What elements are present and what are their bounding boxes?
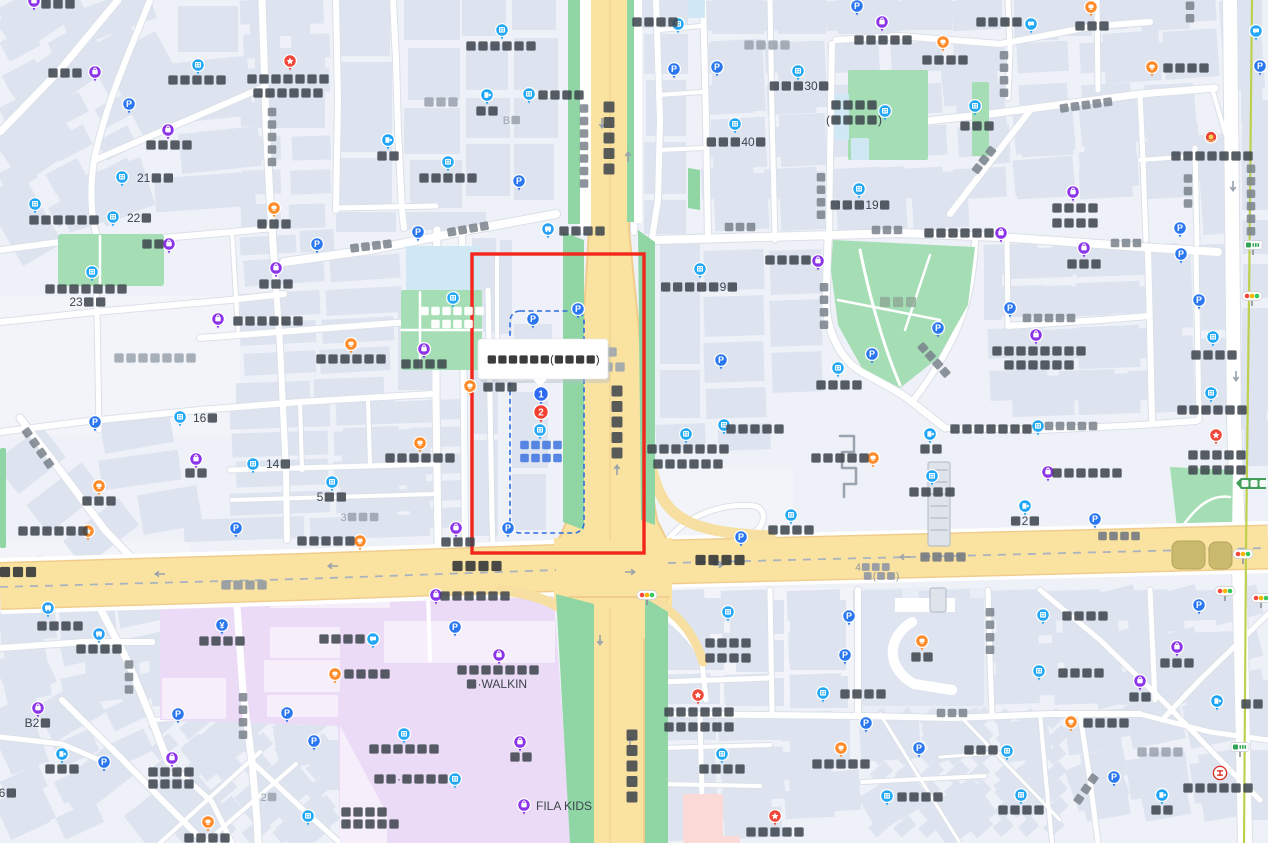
svg-text:4: 4 (855, 563, 861, 574)
svg-text:22: 22 (127, 211, 141, 225)
svg-text:40: 40 (741, 135, 755, 149)
svg-text:6: 6 (0, 786, 6, 800)
svg-text:FILA KIDS: FILA KIDS (536, 799, 592, 813)
svg-text:): ) (596, 354, 600, 366)
svg-text:2: 2 (260, 792, 266, 804)
svg-text:3: 3 (340, 512, 346, 524)
svg-text:): ) (896, 572, 899, 583)
svg-text:19: 19 (865, 198, 879, 212)
svg-text:·: · (397, 772, 401, 786)
svg-text:·WALKIN: ·WALKIN (478, 677, 528, 691)
svg-text:23: 23 (69, 295, 83, 309)
svg-text:B: B (503, 115, 510, 127)
svg-text:16: 16 (193, 411, 207, 425)
svg-text:5: 5 (317, 490, 324, 504)
svg-text:B2: B2 (25, 716, 40, 730)
svg-text:9: 9 (720, 280, 727, 294)
svg-text:14: 14 (266, 457, 280, 471)
svg-text:): ) (878, 113, 882, 127)
svg-text:(: ( (550, 354, 554, 366)
svg-text:2: 2 (1022, 514, 1029, 528)
svg-text:(: ( (826, 113, 830, 127)
svg-text:30: 30 (804, 79, 818, 93)
svg-text:21: 21 (137, 171, 151, 185)
